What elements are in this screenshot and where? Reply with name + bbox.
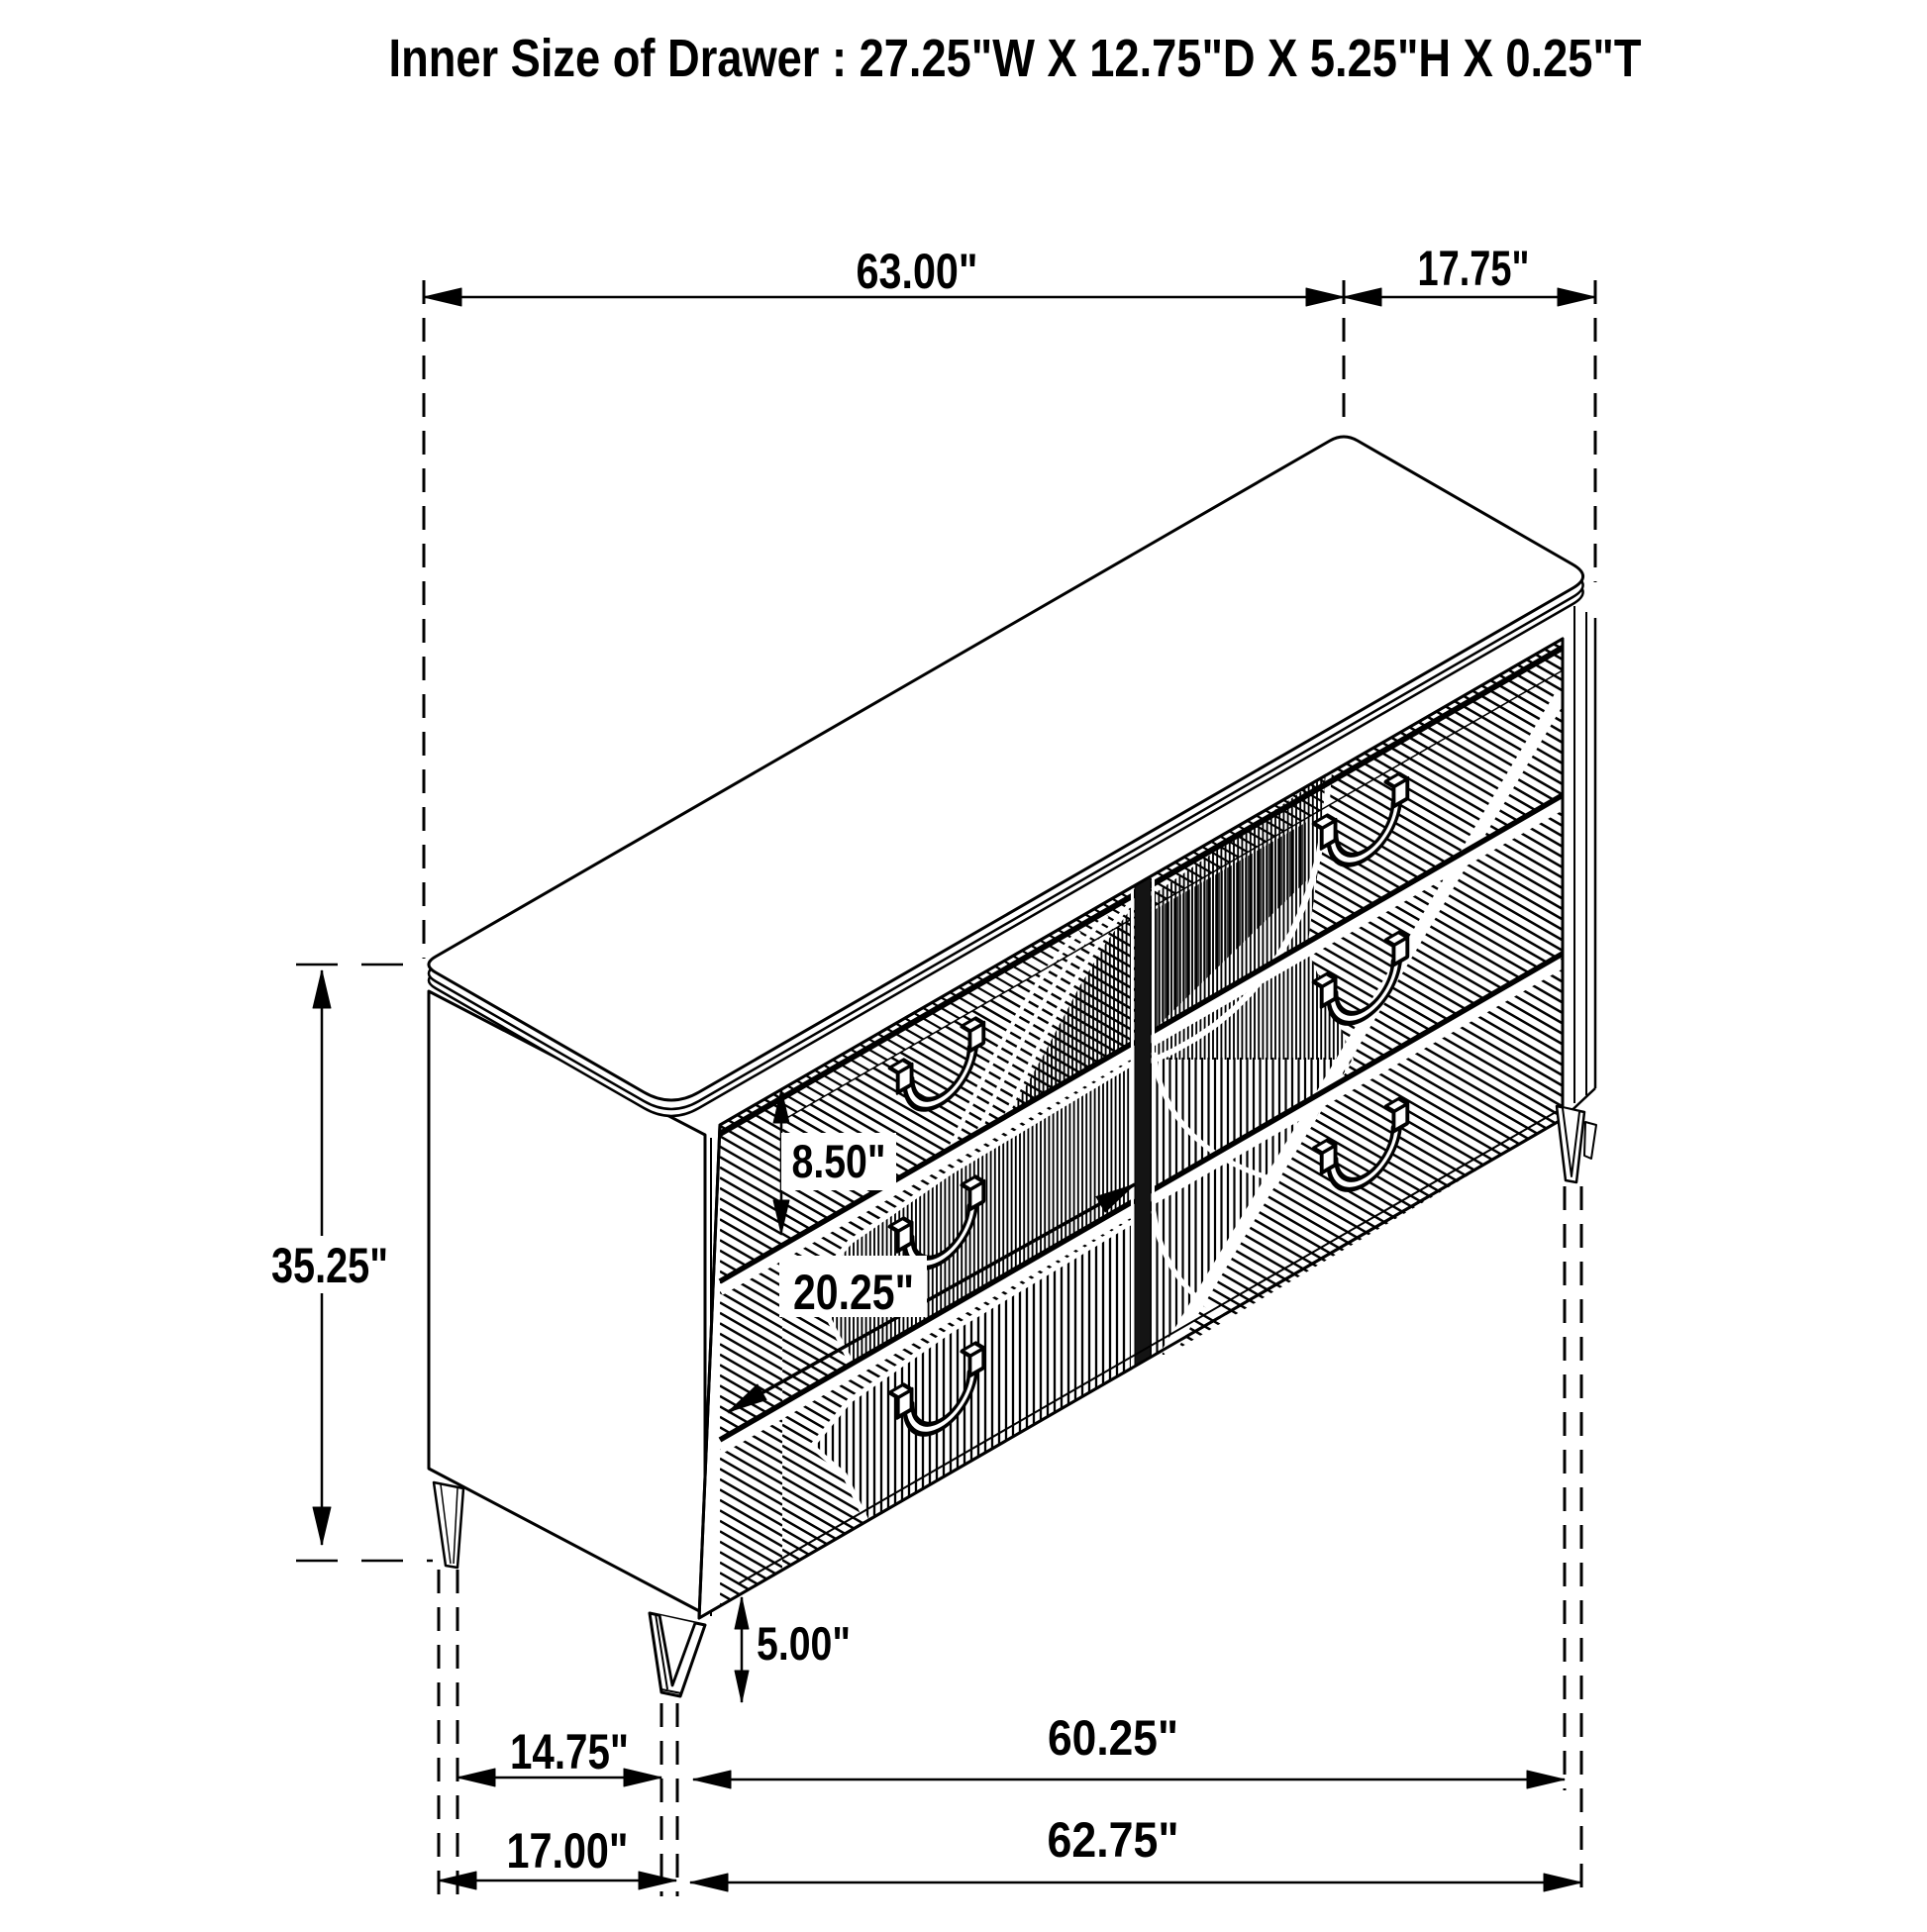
svg-text:17.00": 17.00" (507, 1823, 629, 1879)
svg-text:5.00": 5.00" (757, 1617, 851, 1670)
svg-text:14.75": 14.75" (510, 1724, 629, 1779)
svg-text:Inner Size of Drawer : 27.25"W: Inner Size of Drawer : 27.25"W X 12.75"D… (389, 29, 1642, 88)
svg-text:35.25": 35.25" (271, 1238, 388, 1293)
svg-text:60.25": 60.25" (1048, 1710, 1178, 1766)
svg-text:62.75": 62.75" (1048, 1812, 1179, 1868)
svg-text:63.00": 63.00" (857, 244, 978, 299)
svg-text:20.25": 20.25" (793, 1265, 914, 1320)
svg-text:17.75": 17.75" (1418, 241, 1530, 296)
svg-text:8.50": 8.50" (792, 1135, 886, 1187)
